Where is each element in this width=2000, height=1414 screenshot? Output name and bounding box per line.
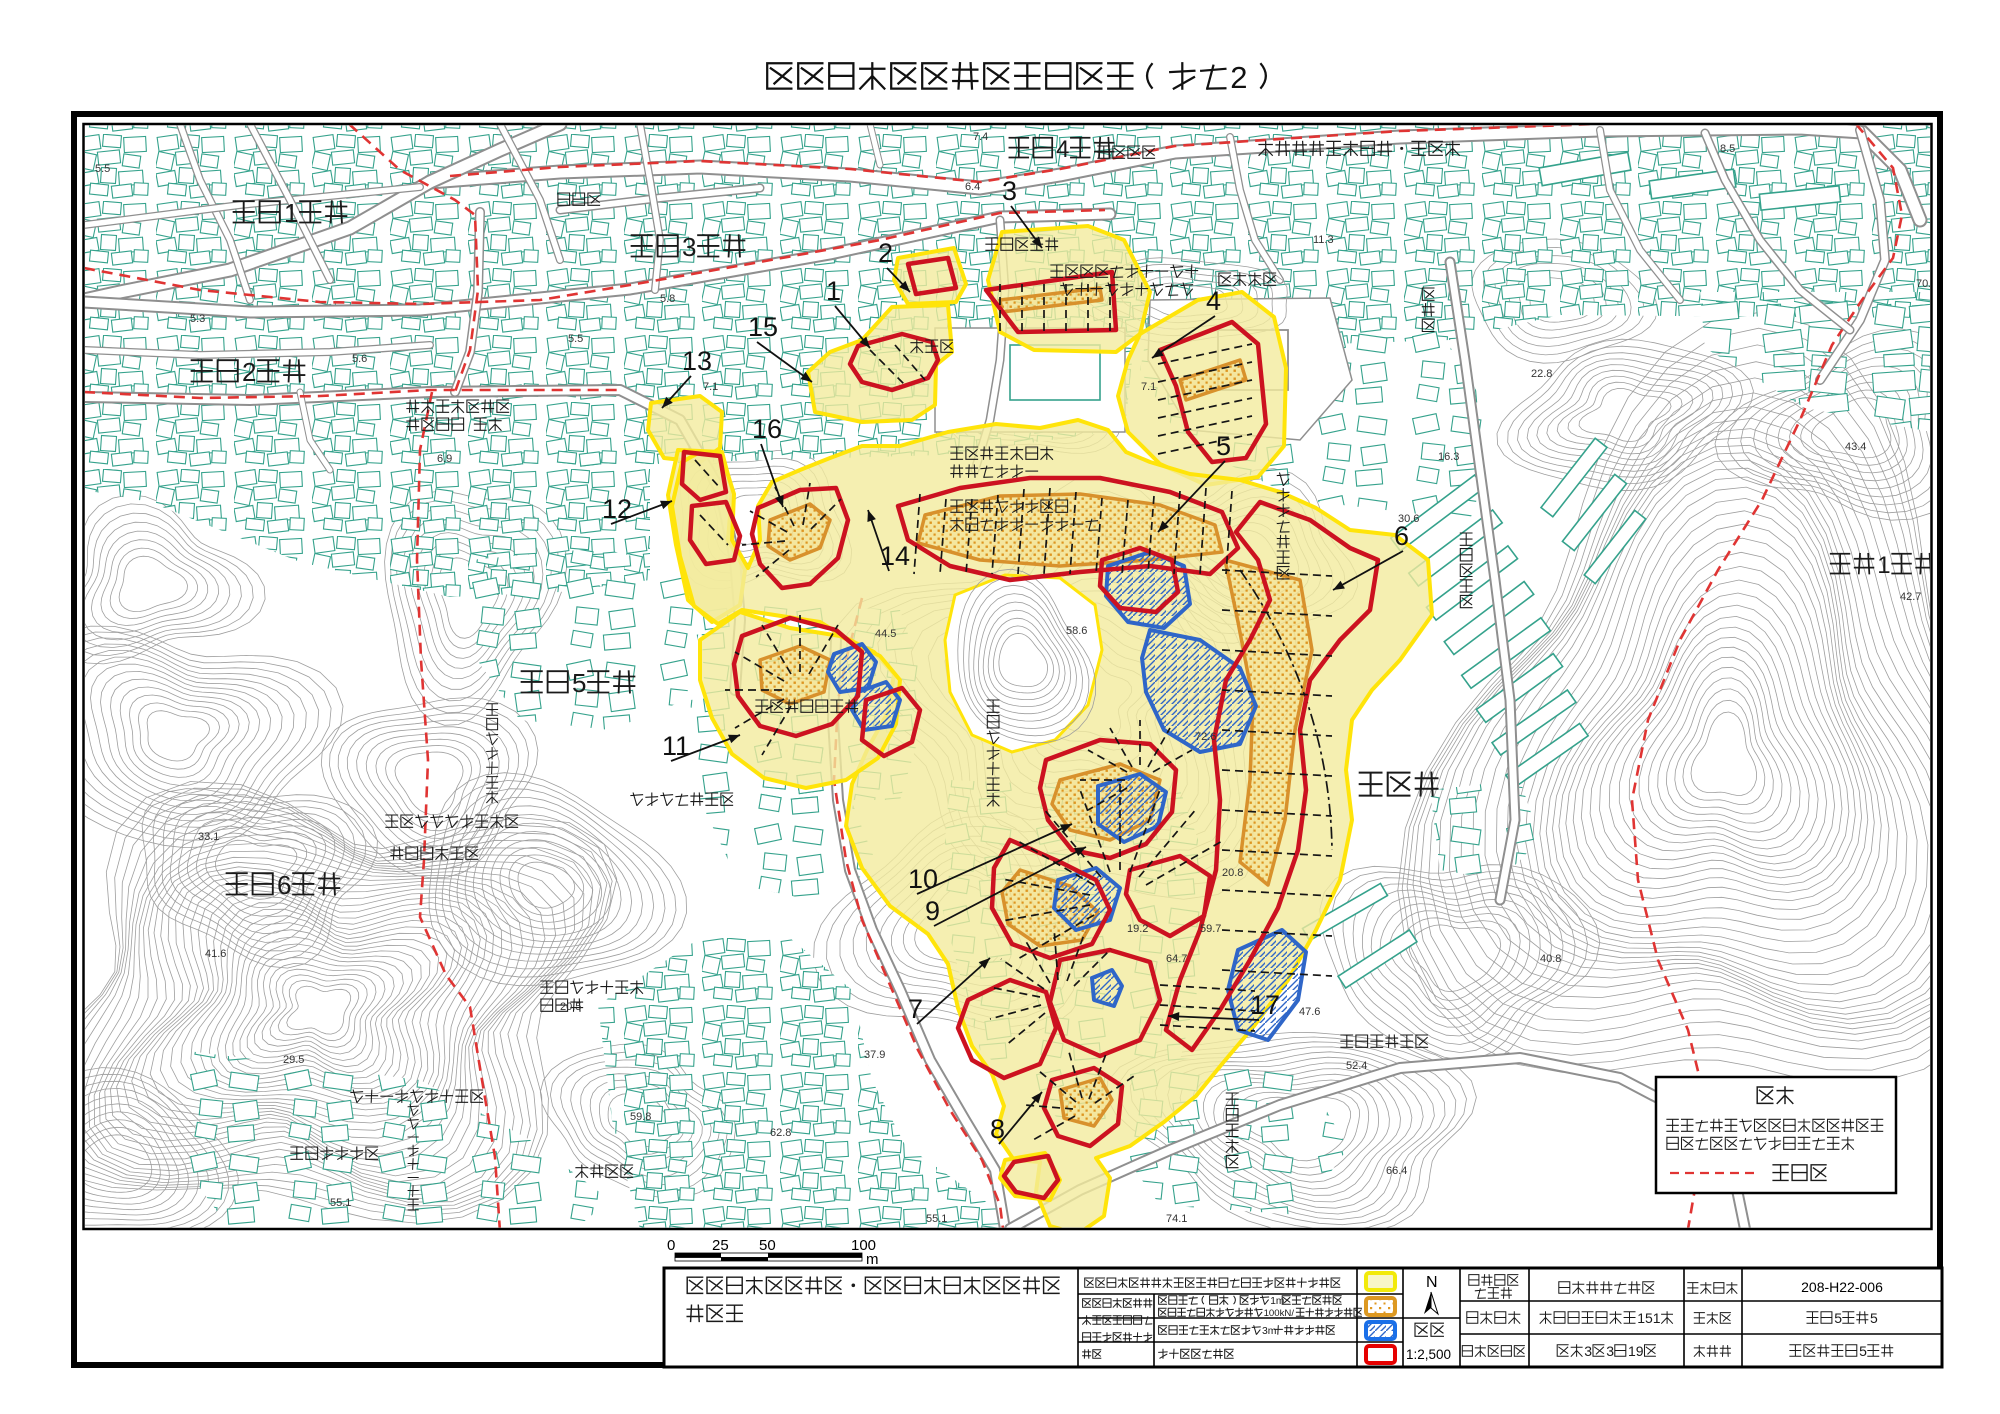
svg-text:6.4: 6.4 (965, 181, 980, 193)
svg-text:59.8: 59.8 (630, 1111, 651, 1123)
svg-text:2: 2 (878, 238, 893, 268)
svg-text:11.3: 11.3 (1313, 234, 1334, 246)
svg-text:10: 10 (908, 864, 938, 894)
svg-text:22.8: 22.8 (1531, 368, 1552, 380)
svg-text:5.5: 5.5 (95, 163, 110, 175)
svg-text:59.7: 59.7 (1200, 923, 1221, 935)
svg-text:4: 4 (1206, 286, 1221, 316)
svg-text:42.7: 42.7 (1900, 591, 1921, 603)
svg-text:3: 3 (682, 232, 696, 262)
svg-text:3: 3 (1584, 1343, 1592, 1359)
svg-text:25: 25 (712, 1237, 729, 1254)
svg-text:0: 0 (667, 1237, 675, 1254)
svg-text:1: 1 (284, 198, 298, 228)
svg-text:29.5: 29.5 (283, 1054, 304, 1066)
svg-text:66.4: 66.4 (1386, 1165, 1407, 1177)
svg-text:70.8: 70.8 (1916, 278, 1937, 290)
svg-text:33.1: 33.1 (198, 831, 219, 843)
svg-text:3: 3 (1606, 1343, 1614, 1359)
svg-text:5: 5 (1834, 1310, 1842, 1326)
svg-text:5: 5 (1216, 431, 1231, 461)
svg-text:47.6: 47.6 (1299, 1006, 1320, 1018)
svg-text:5.3: 5.3 (190, 313, 205, 325)
svg-text:72.6: 72.6 (1195, 731, 1216, 743)
svg-text:50: 50 (759, 1237, 776, 1254)
svg-text:12: 12 (602, 494, 632, 524)
svg-text:5.6: 5.6 (352, 353, 367, 365)
svg-text:43.4: 43.4 (1845, 441, 1866, 453)
svg-text:20.5: 20.5 (560, 1001, 581, 1013)
svg-text:2: 2 (1230, 60, 1247, 95)
svg-text:2: 2 (242, 357, 256, 387)
svg-text:6.9: 6.9 (437, 453, 452, 465)
svg-text:7.1: 7.1 (1141, 381, 1156, 393)
svg-text:208-H22-006: 208-H22-006 (1801, 1279, 1883, 1295)
svg-text:37.9: 37.9 (864, 1049, 885, 1061)
svg-text:44.5: 44.5 (875, 628, 896, 640)
svg-text:6: 6 (277, 870, 291, 900)
svg-text:151: 151 (1637, 1310, 1661, 1326)
svg-text:5.8: 5.8 (660, 293, 675, 305)
svg-text:7.4: 7.4 (973, 131, 988, 143)
svg-text:m: m (866, 1251, 879, 1268)
svg-text:N: N (1426, 1274, 1438, 1291)
svg-text:19: 19 (1628, 1343, 1644, 1359)
svg-text:64.7: 64.7 (1166, 953, 1187, 965)
svg-text:9: 9 (925, 896, 940, 926)
svg-text:11: 11 (662, 731, 690, 761)
svg-text:3: 3 (1002, 176, 1017, 206)
svg-text:40.8: 40.8 (1540, 953, 1561, 965)
svg-text:6: 6 (1394, 521, 1409, 551)
svg-text:1: 1 (826, 276, 841, 306)
svg-text:7.1: 7.1 (703, 381, 718, 393)
svg-text:100kN/: 100kN/ (1264, 1308, 1295, 1319)
svg-text:55.1: 55.1 (330, 1197, 351, 1209)
svg-text:16.3: 16.3 (1438, 451, 1459, 463)
svg-text:52.4: 52.4 (1346, 1060, 1367, 1072)
svg-text:5: 5 (1870, 1310, 1878, 1326)
svg-text:15: 15 (748, 312, 778, 342)
svg-text:5.5: 5.5 (568, 333, 583, 345)
svg-text:20.8: 20.8 (1222, 867, 1243, 879)
svg-text:8.5: 8.5 (1720, 143, 1735, 155)
svg-text:5: 5 (572, 668, 586, 698)
svg-text:74.1: 74.1 (1166, 1213, 1187, 1225)
svg-text:41.6: 41.6 (205, 948, 226, 960)
svg-text:3m: 3m (1262, 1326, 1276, 1337)
svg-text:17: 17 (1250, 990, 1280, 1020)
svg-text:4: 4 (1056, 136, 1069, 163)
svg-text:1: 1 (1877, 552, 1890, 579)
svg-text:1:2,500: 1:2,500 (1406, 1347, 1451, 1362)
svg-text:19.2: 19.2 (1127, 923, 1148, 935)
svg-text:62.8: 62.8 (770, 1127, 791, 1139)
svg-text:16: 16 (752, 414, 782, 444)
svg-text:55.1: 55.1 (926, 1213, 947, 1225)
svg-text:13: 13 (682, 346, 712, 376)
svg-text:5: 5 (1859, 1343, 1867, 1359)
svg-text:58.6: 58.6 (1066, 625, 1087, 637)
